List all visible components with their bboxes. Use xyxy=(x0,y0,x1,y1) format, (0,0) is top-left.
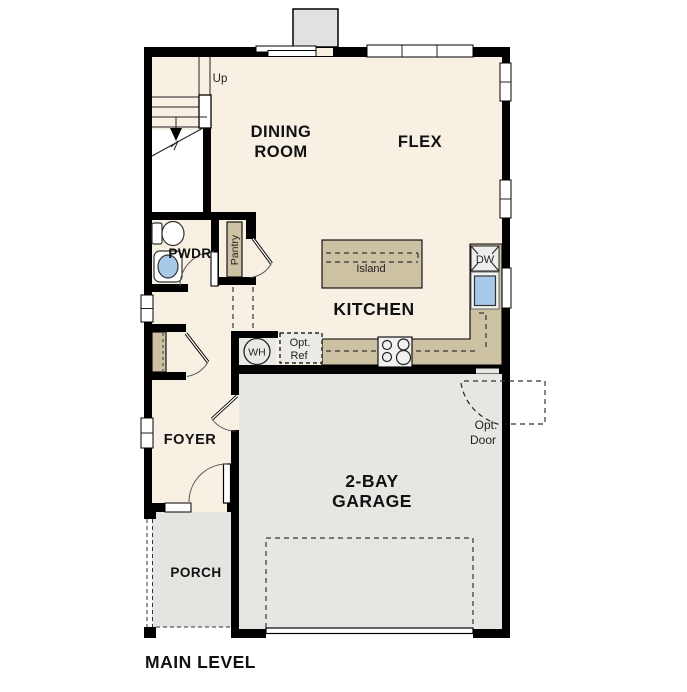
kitchen-label: KITCHEN xyxy=(333,299,414,319)
porch-post-bottom xyxy=(144,627,156,638)
garage-label-2: GARAGE xyxy=(332,491,412,511)
island-label: Island xyxy=(356,263,385,275)
water-heater-niche-wall xyxy=(231,331,278,338)
water-heater-label: WH xyxy=(248,347,266,359)
dining-room-label-1: DINING xyxy=(251,123,312,141)
dining-room-label-2: ROOM xyxy=(254,143,307,161)
pwdr-bottom-wall xyxy=(144,284,188,292)
foyer-label: FOYER xyxy=(164,432,216,448)
kitchen-island: Island xyxy=(322,240,422,288)
dishwasher-label: DW xyxy=(476,254,495,266)
window-flex-triple xyxy=(367,45,473,57)
garage-top-wall xyxy=(231,365,503,374)
floor-plan: Up PWDR Pantry WH xyxy=(0,0,687,687)
pwdr-label: PWDR xyxy=(168,246,211,261)
garage-label-1: 2-BAY xyxy=(345,471,398,491)
chimney xyxy=(293,9,338,47)
fireplace-opening xyxy=(316,48,333,56)
front-sidelite-window xyxy=(165,503,191,512)
garage-bottom-wall-left xyxy=(231,629,266,638)
closet-top-wall xyxy=(144,324,186,332)
pantry-bottom-wall xyxy=(215,277,256,285)
kitchen-sink-icon xyxy=(475,276,496,306)
opt-ref-label-1: Opt. xyxy=(290,337,311,349)
floor-plan-page: Up PWDR Pantry WH xyxy=(0,0,687,687)
flex-label: FLEX xyxy=(398,133,442,151)
garage-door xyxy=(266,628,473,634)
right-exterior-wall xyxy=(502,47,510,638)
foyer-front-wall-right xyxy=(227,503,239,512)
closet-shelf xyxy=(152,332,166,372)
water-heater: WH xyxy=(239,338,276,365)
porch-post-top xyxy=(144,509,156,519)
garage-wall-notch-header xyxy=(476,366,499,369)
garage-left-wall xyxy=(231,332,239,638)
closet-bottom-wall xyxy=(144,372,186,380)
front-door-opening xyxy=(191,503,227,512)
garage-bottom-wall-right xyxy=(473,629,510,638)
pwdr-pantry-top-wall xyxy=(144,212,256,220)
stair-wall xyxy=(203,125,211,220)
pwdr-door-leaf xyxy=(211,252,218,286)
opt-door-label-1: Opt. xyxy=(475,418,498,432)
porch-label: PORCH xyxy=(170,565,221,580)
stair-newel-rail xyxy=(199,95,211,128)
front-door-leaf xyxy=(224,464,231,503)
opt-door-label-2: Door xyxy=(470,433,496,447)
pantry-label: Pantry xyxy=(229,234,241,265)
opt-ref-label-2: Ref xyxy=(290,350,308,362)
pantry-right-post xyxy=(246,212,256,239)
toilet-bowl-icon xyxy=(162,222,184,246)
toilet-tank-icon xyxy=(152,223,162,244)
level-title: MAIN LEVEL xyxy=(145,652,256,672)
up-label: Up xyxy=(213,73,228,85)
window-dining xyxy=(268,51,316,57)
